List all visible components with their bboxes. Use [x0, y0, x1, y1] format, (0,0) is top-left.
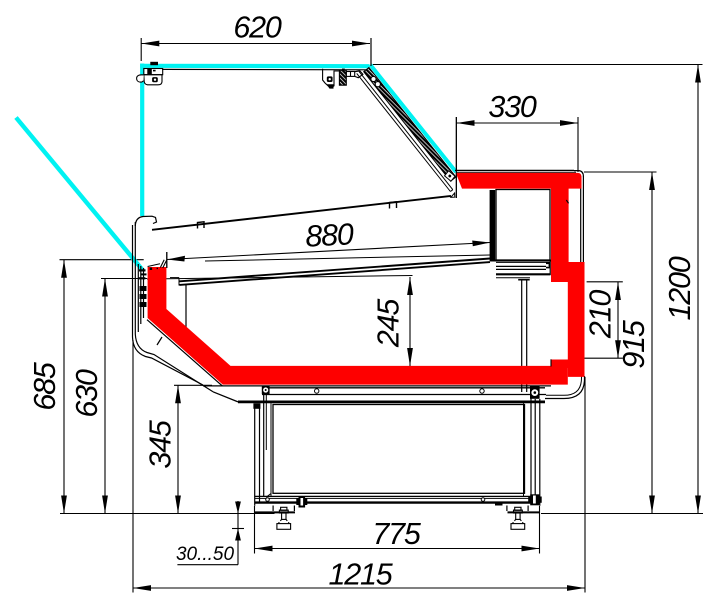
svg-text:630: 630: [70, 369, 104, 418]
svg-text:620: 620: [233, 11, 282, 45]
svg-text:685: 685: [28, 361, 62, 411]
svg-text:880: 880: [305, 217, 355, 253]
svg-text:1215: 1215: [328, 558, 393, 592]
svg-text:775: 775: [372, 517, 422, 551]
svg-text:915: 915: [617, 319, 651, 369]
svg-text:30...50: 30...50: [176, 544, 235, 565]
svg-text:330: 330: [488, 90, 537, 124]
svg-text:245: 245: [372, 298, 406, 349]
svg-text:210: 210: [584, 290, 618, 340]
svg-text:345: 345: [144, 419, 178, 469]
svg-text:1200: 1200: [663, 256, 697, 320]
